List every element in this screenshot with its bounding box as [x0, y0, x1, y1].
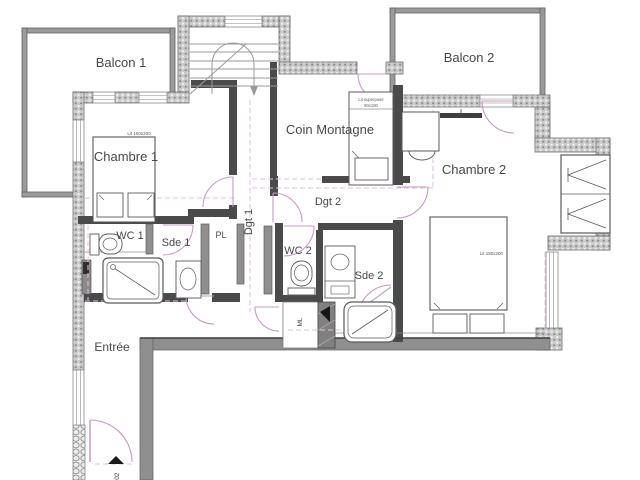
room-label-ml: ML: [297, 317, 304, 326]
floor-plan-canvas: Balcon 1 Balcon 2 Chambre 1 Chambre 2 Co…: [0, 0, 640, 480]
toilet-wc2: [288, 261, 315, 295]
room-label-coin-montagne: Coin Montagne: [286, 122, 374, 137]
balcon2-wall-left: [390, 8, 395, 95]
balcon2-wall-top: [390, 8, 545, 13]
sink-sde2: [325, 246, 355, 298]
balcon1-wall-top: [22, 28, 175, 33]
room-label-chambre2: Chambre 2: [442, 162, 506, 177]
bed2-pillow-right: [470, 314, 504, 333]
wall-shelf: [440, 113, 482, 118]
room-label-dgt1: Dgt 1: [243, 209, 255, 235]
room-label-chambre1: Chambre 1: [94, 149, 158, 164]
balcon1-wall-bottom: [22, 192, 80, 197]
room-label-pl: PL: [215, 230, 226, 240]
window-stair-top: [225, 16, 262, 27]
technical-shaft-sde1: [82, 260, 91, 294]
room-label-dgt2: Dgt 2: [315, 196, 341, 208]
window-entree-left: [73, 370, 84, 425]
room-label-wc1: WC 1: [116, 230, 144, 242]
shower-sde2: [344, 302, 396, 342]
shower-sde1: [103, 258, 163, 303]
bed2-size-label: Lit 180x200: [480, 251, 504, 256]
room-label-balcon1: Balcon 1: [96, 55, 147, 70]
wall-south-main: [140, 338, 550, 350]
room-label-entree: Entrée: [94, 340, 130, 354]
bunk-label-line1: Lit superposé: [358, 97, 384, 102]
window-chambre1-top-1: [93, 92, 115, 103]
room-label-sde1: Sde 1: [162, 237, 191, 249]
window-chambre1-top-2: [139, 92, 167, 103]
sink-sde1: [176, 261, 201, 298]
bed2-pillow-left: [433, 314, 467, 333]
bed1-size-label: Lit 160x200: [127, 131, 151, 136]
balcon1-wall-right: [170, 28, 175, 95]
window-chambre2-east: [546, 252, 558, 328]
room-label-sde2: Sde 2: [355, 270, 384, 282]
wardrobe-chambre2: [561, 155, 610, 233]
balcon1-wall-left: [22, 28, 27, 197]
technical-shaft-ml: [283, 302, 335, 348]
balcon2-wall-right: [540, 8, 545, 95]
floor-plan-drawing: Balcon 1 Balcon 2 Chambre 1 Chambre 2 Co…: [0, 0, 640, 480]
room-label-balcon2: Balcon 2: [444, 50, 495, 65]
room-label-wc2: WC 2: [284, 245, 312, 257]
door-number-label: 302: [114, 472, 121, 480]
wall-entree-east: [140, 338, 153, 480]
window-chambre1-left: [73, 120, 84, 162]
existing-wall-coil: [73, 425, 85, 480]
bunk-label-line2: 90x190: [364, 103, 378, 108]
